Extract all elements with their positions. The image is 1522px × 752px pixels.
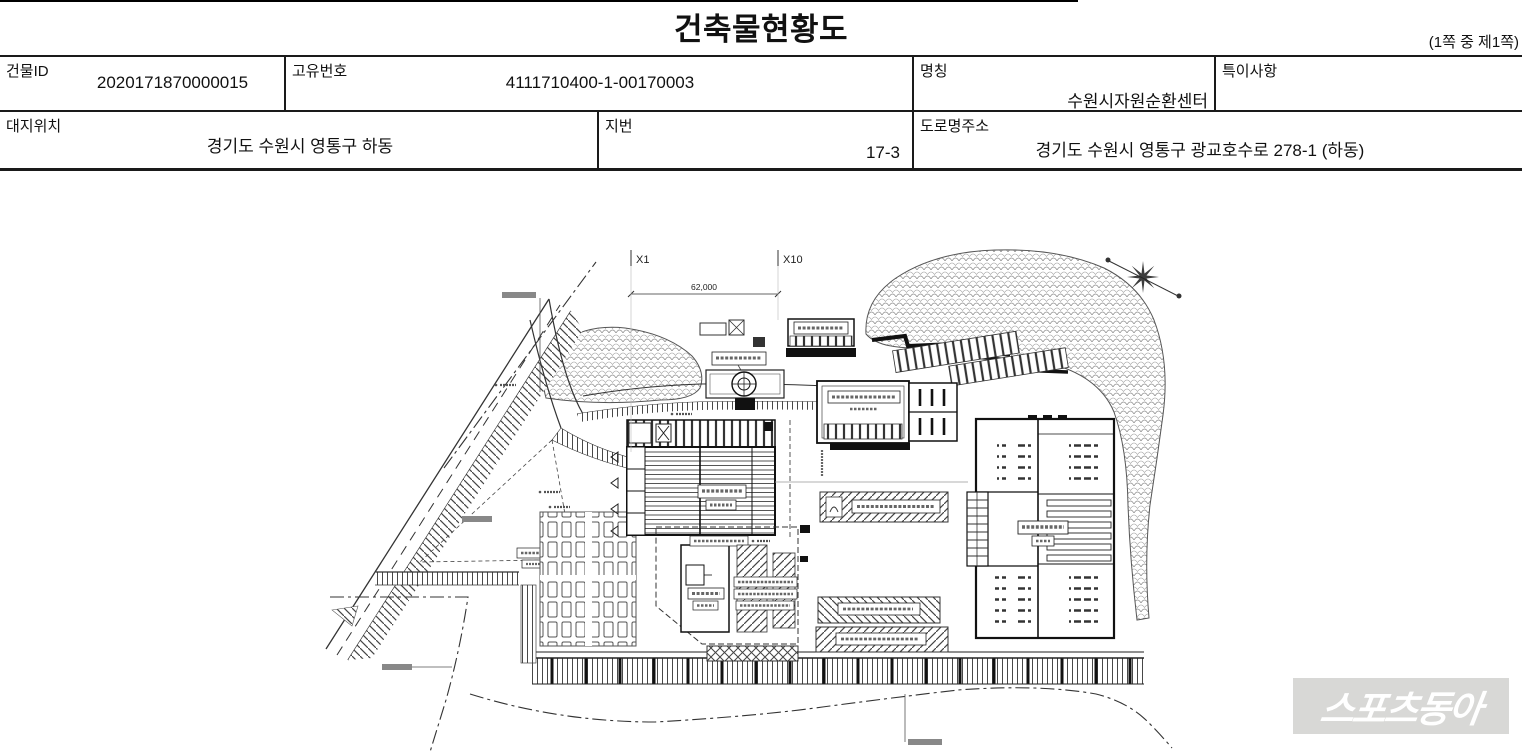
- building-id-label: 건물ID: [6, 60, 49, 81]
- grid-label-x1: X1: [636, 254, 649, 266]
- hatched-road-strips: [816, 492, 948, 652]
- sedimentation-tank: [700, 320, 784, 410]
- building-bulky-waste: [817, 381, 957, 450]
- table-border-bottom: [0, 168, 1522, 171]
- unique-number-value: 4111710400-1-00170003: [360, 73, 840, 93]
- unique-number-label: 고유번호: [292, 60, 347, 81]
- building-management: [656, 527, 798, 661]
- table-border-middle: [0, 110, 1522, 112]
- site-location-label: 대지위치: [6, 115, 61, 136]
- table-vline-4: [597, 110, 599, 171]
- building-status-document: 건축물현황도 (1쪽 중 제1쪽) 건물ID 2020171870000015 …: [0, 0, 1522, 752]
- lot-number-label: 지번: [605, 115, 633, 136]
- remarks-label: 특이사항: [1222, 60, 1277, 81]
- building-wheel-wash: [786, 319, 856, 357]
- watermark-logo: 스포츠동아: [1293, 678, 1509, 734]
- table-vline-3: [1214, 55, 1216, 112]
- retaining-wall-bottom: [532, 652, 1144, 684]
- name-value: 수원시자원순환센터: [920, 87, 1208, 112]
- page-title: 건축물현황도: [0, 4, 1522, 49]
- lot-number-value: 17-3: [700, 143, 900, 163]
- table-border-top: [0, 55, 1522, 57]
- building-recycling: [967, 415, 1114, 638]
- site-location-value: 경기도 수원시 영통구 하동: [80, 132, 520, 157]
- page-count-note: (1쪽 중 제1쪽): [1429, 31, 1519, 52]
- site-plan-drawing: X1 X10 62,000: [300, 234, 1230, 752]
- grid-label-x10: X10: [783, 254, 803, 266]
- name-label: 명칭: [920, 60, 948, 81]
- building-id-value: 2020171870000015: [60, 73, 285, 93]
- dimension-label: 62,000: [691, 282, 717, 292]
- top-rule: [0, 0, 1078, 2]
- parking-grid: [521, 512, 636, 663]
- road-address-label: 도로명주소: [920, 115, 989, 136]
- watermark-text: 스포츠동아: [1317, 679, 1485, 733]
- road-address-value: 경기도 수원시 영통구 광교호수로 278-1 (하동): [920, 136, 1480, 161]
- table-vline-2: [912, 55, 914, 171]
